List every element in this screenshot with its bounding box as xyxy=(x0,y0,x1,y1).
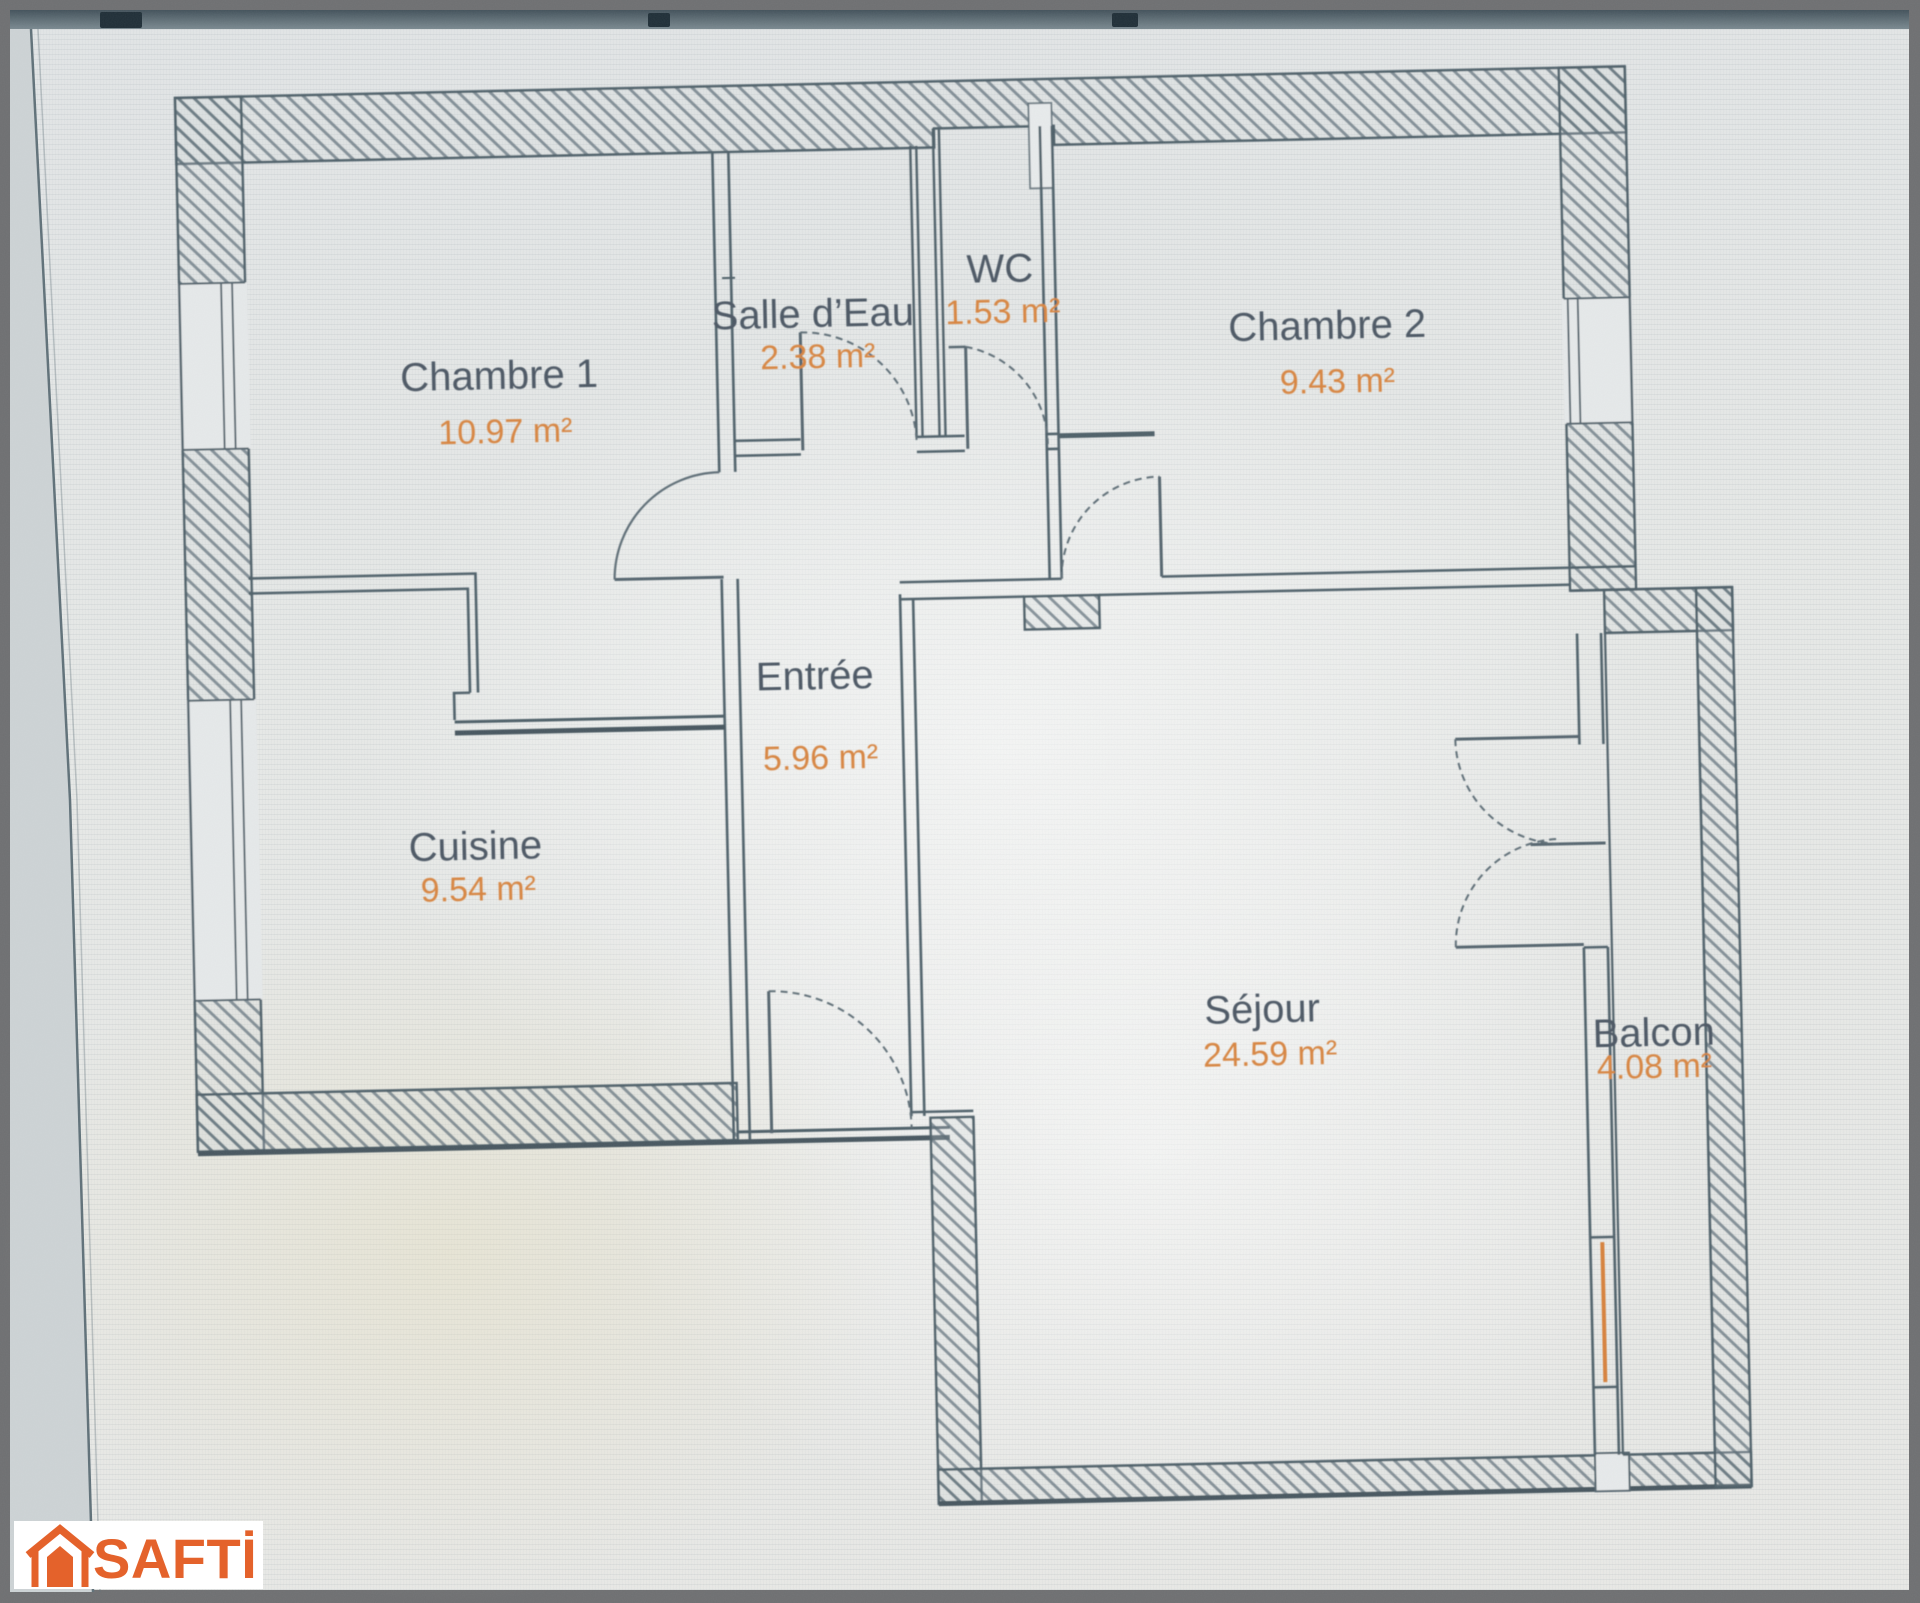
svg-text:SAFTİ: SAFTİ xyxy=(93,1527,257,1590)
